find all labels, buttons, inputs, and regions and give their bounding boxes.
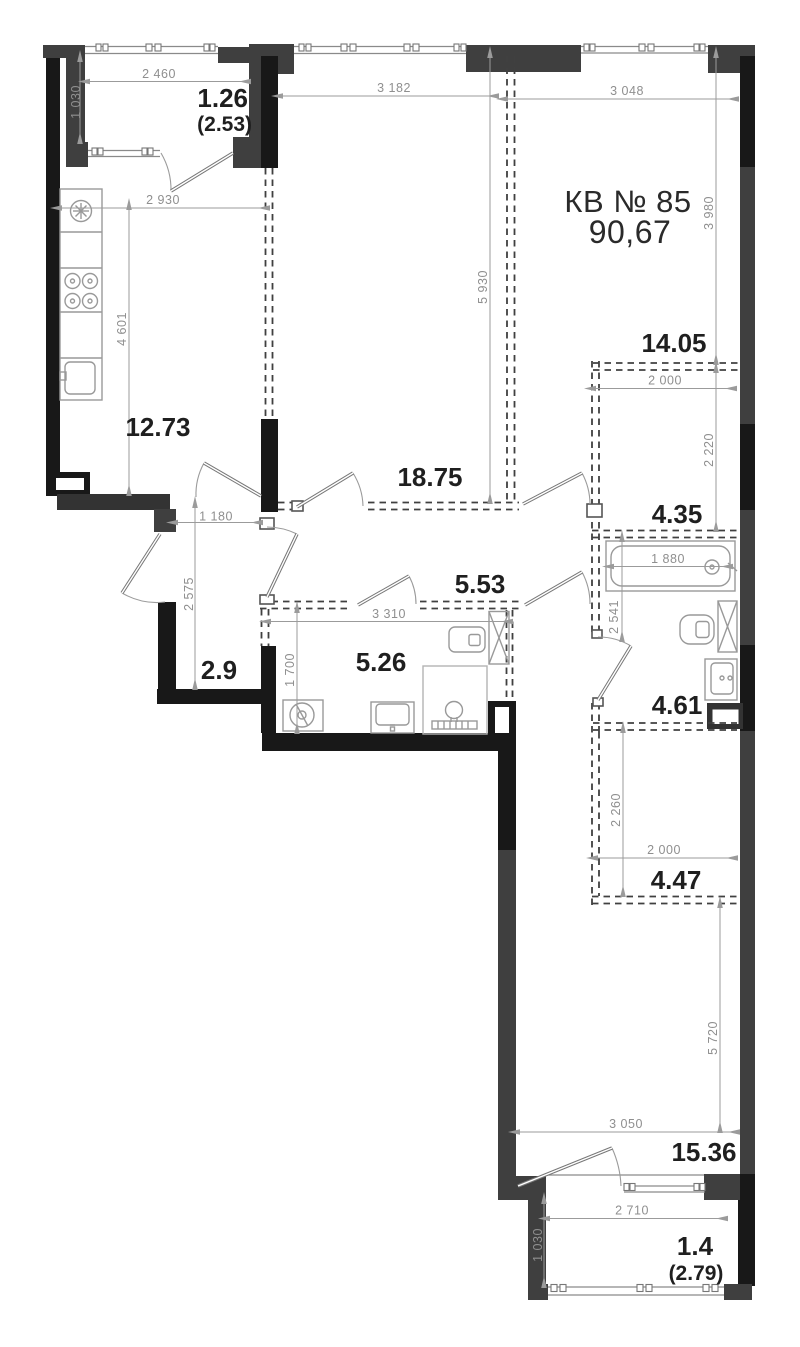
svg-text:3 980: 3 980 bbox=[702, 196, 716, 230]
svg-text:2 575: 2 575 bbox=[182, 577, 196, 611]
svg-text:4.47: 4.47 bbox=[651, 865, 702, 895]
svg-text:14.05: 14.05 bbox=[641, 328, 706, 358]
svg-text:3 050: 3 050 bbox=[609, 1117, 643, 1131]
svg-text:3 048: 3 048 bbox=[610, 84, 644, 98]
svg-text:12.73: 12.73 bbox=[125, 412, 190, 442]
svg-text:1 880: 1 880 bbox=[651, 552, 685, 566]
svg-text:15.36: 15.36 bbox=[671, 1137, 736, 1167]
svg-text:1 030: 1 030 bbox=[69, 85, 83, 119]
svg-text:1.26: 1.26 bbox=[197, 83, 248, 113]
svg-text:5.53: 5.53 bbox=[455, 569, 506, 599]
svg-text:3 310: 3 310 bbox=[372, 607, 406, 621]
svg-text:2 541: 2 541 bbox=[607, 600, 621, 634]
svg-text:3 182: 3 182 bbox=[377, 81, 411, 95]
svg-text:2 260: 2 260 bbox=[609, 793, 623, 827]
svg-text:4.61: 4.61 bbox=[652, 690, 703, 720]
svg-text:2 220: 2 220 bbox=[702, 433, 716, 467]
svg-text:4 601: 4 601 bbox=[115, 312, 129, 346]
svg-text:5.26: 5.26 bbox=[356, 647, 407, 677]
svg-text:2.9: 2.9 bbox=[201, 655, 237, 685]
svg-text:1 030: 1 030 bbox=[531, 1228, 545, 1262]
svg-text:2 000: 2 000 bbox=[647, 843, 681, 857]
svg-text:4.35: 4.35 bbox=[652, 499, 703, 529]
svg-text:5 930: 5 930 bbox=[476, 270, 490, 304]
svg-text:(2.53): (2.53) bbox=[197, 113, 252, 136]
svg-text:(2.79): (2.79) bbox=[669, 1262, 724, 1285]
svg-text:5 720: 5 720 bbox=[706, 1021, 720, 1055]
svg-text:18.75: 18.75 bbox=[397, 462, 462, 492]
svg-text:1 180: 1 180 bbox=[199, 510, 233, 524]
svg-text:90,67: 90,67 bbox=[589, 214, 672, 250]
svg-text:2 460: 2 460 bbox=[142, 67, 176, 81]
svg-text:2 000: 2 000 bbox=[648, 374, 682, 388]
svg-text:1.4: 1.4 bbox=[677, 1231, 714, 1261]
svg-text:2 930: 2 930 bbox=[146, 193, 180, 207]
svg-text:2 710: 2 710 bbox=[615, 1204, 649, 1218]
svg-text:1 700: 1 700 bbox=[283, 653, 297, 687]
